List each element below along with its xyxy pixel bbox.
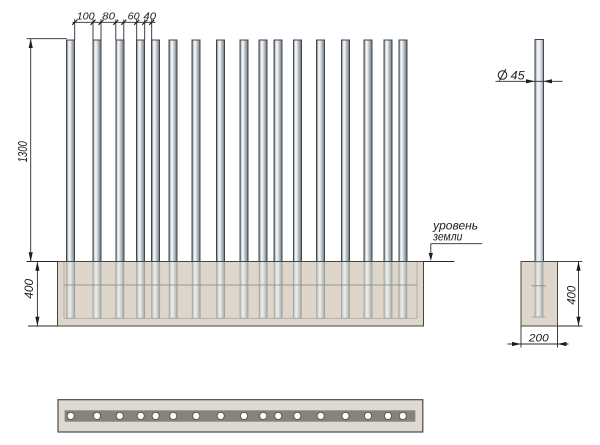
svg-text:1300: 1300 [16, 141, 30, 162]
svg-text:80: 80 [102, 11, 115, 22]
svg-text:400: 400 [22, 279, 36, 299]
svg-text:45: 45 [511, 68, 525, 82]
svg-text:60: 60 [128, 11, 140, 22]
svg-text:40: 40 [143, 11, 156, 22]
svg-text:земли: земли [432, 230, 462, 244]
svg-text:100: 100 [77, 11, 95, 22]
svg-text:400: 400 [565, 285, 579, 304]
svg-text:200: 200 [528, 332, 549, 344]
